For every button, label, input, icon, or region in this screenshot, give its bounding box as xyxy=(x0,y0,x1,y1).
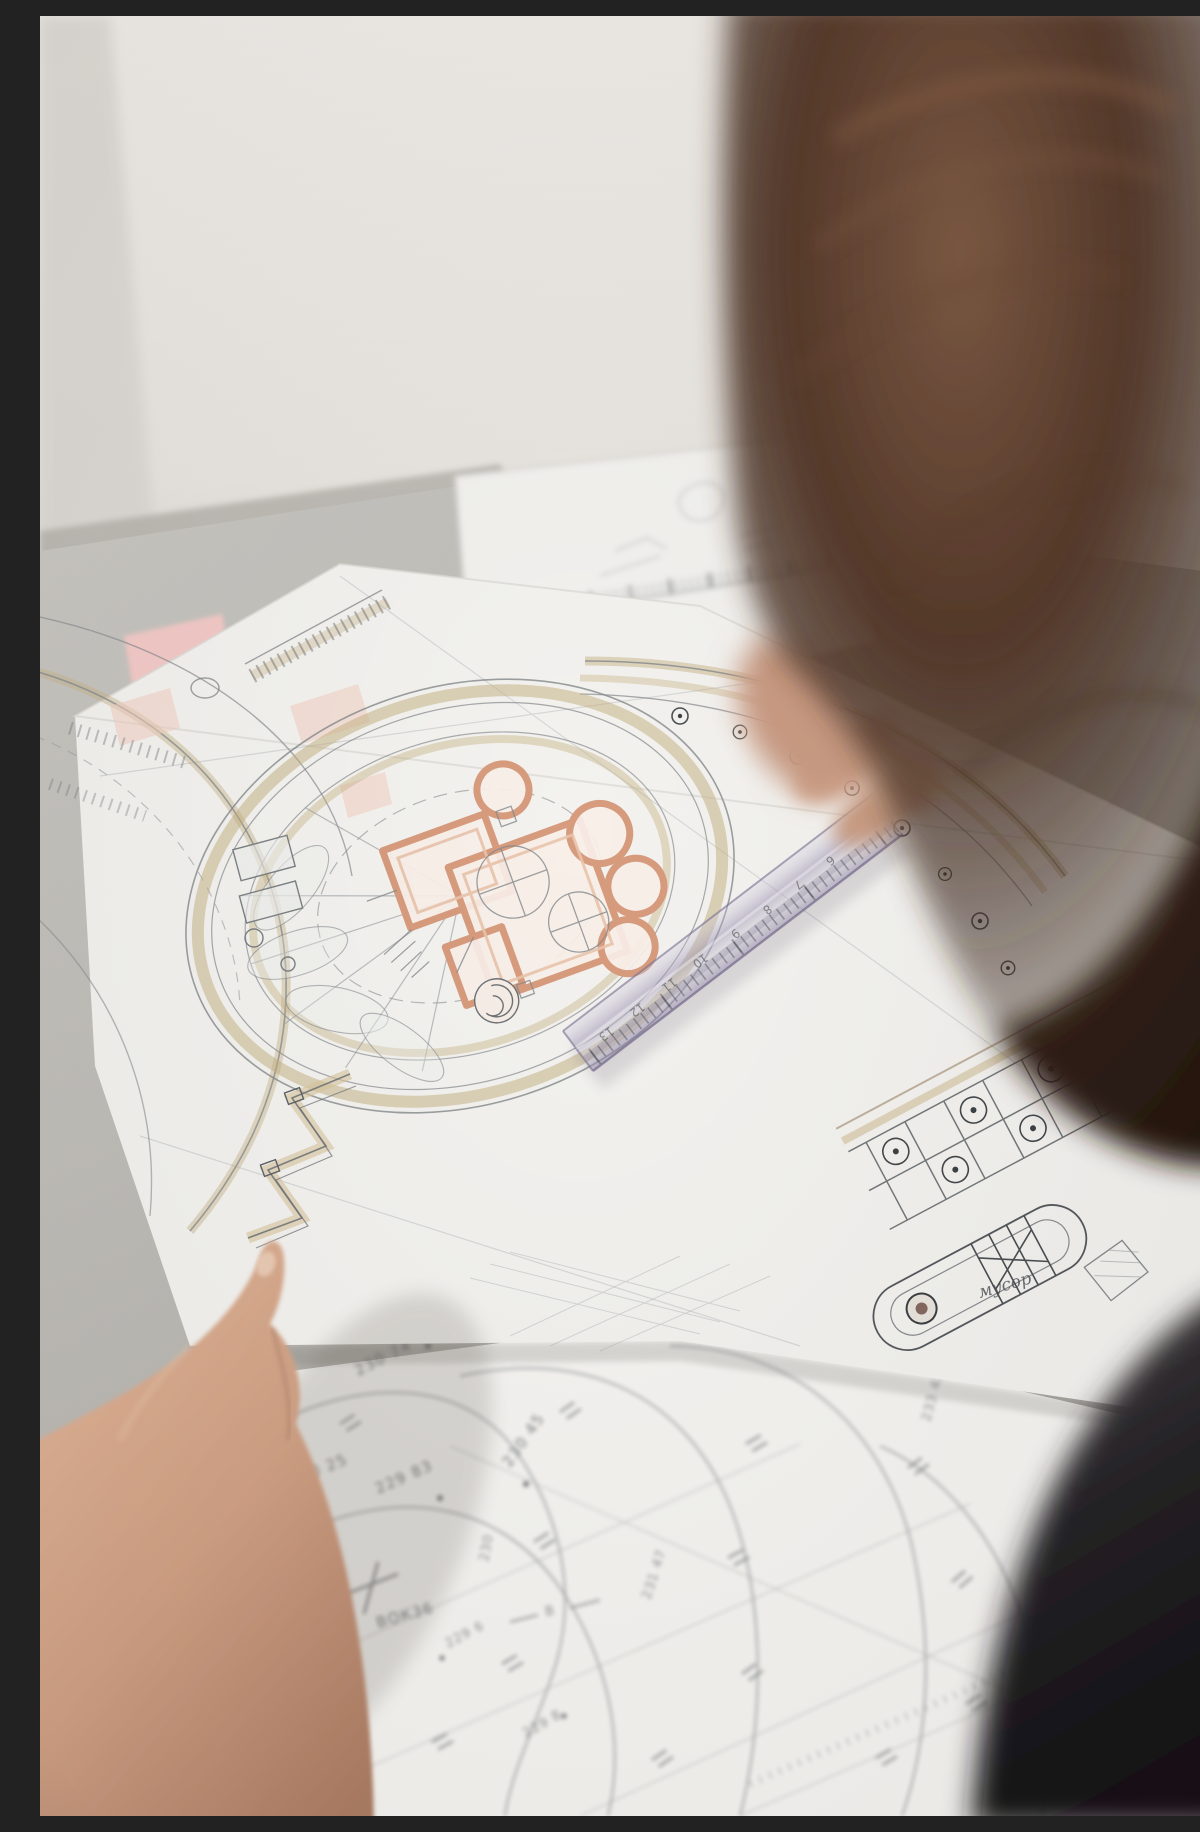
photo-architect-plans: 230 74 230 25 229 83 230 45 231 47 230 2… xyxy=(40,16,1200,1816)
photo-canvas: 230 74 230 25 229 83 230 45 231 47 230 2… xyxy=(40,16,1200,1816)
photo-vignette xyxy=(40,16,1200,1816)
